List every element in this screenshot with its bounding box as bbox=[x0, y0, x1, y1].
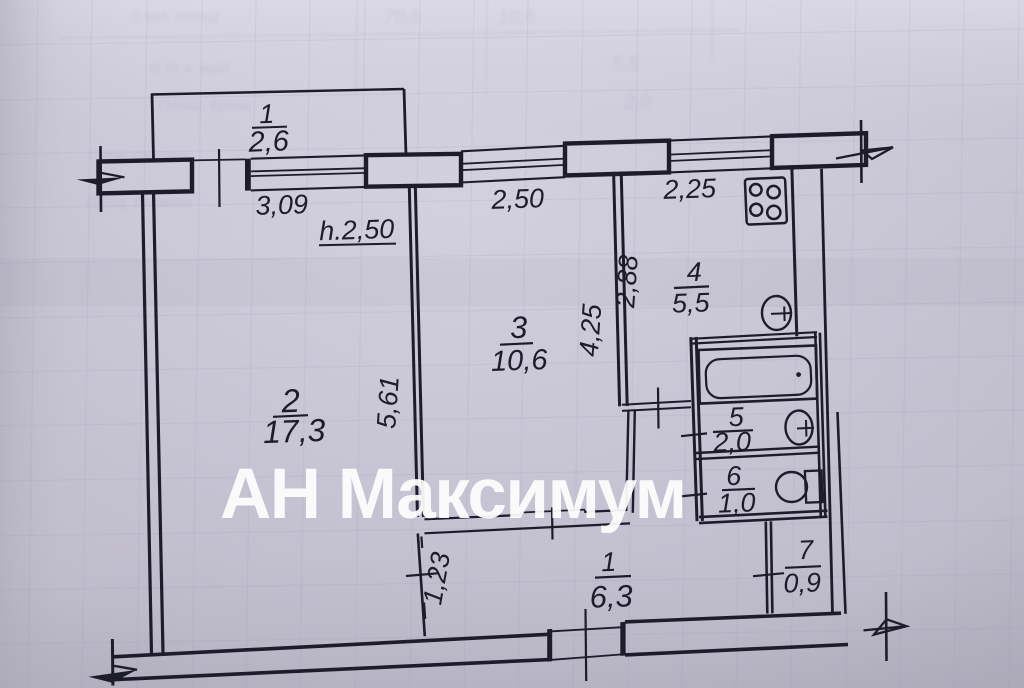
svg-text:5,5: 5,5 bbox=[671, 287, 711, 318]
svg-text:3,09: 3,09 bbox=[255, 189, 309, 221]
svg-text:h.2,50: h.2,50 bbox=[319, 214, 395, 247]
svg-text:8 мл. площ: 8 мл. площ bbox=[131, 7, 219, 26]
svg-text:10,6: 10,6 bbox=[498, 7, 535, 28]
svg-text:В т.ч. жил: В т.ч. жил bbox=[150, 60, 229, 77]
svg-text:10,6: 10,6 bbox=[490, 344, 548, 378]
svg-text:2,0: 2,0 bbox=[712, 426, 752, 457]
svg-text:2,50: 2,50 bbox=[490, 183, 545, 215]
svg-text:5,5: 5,5 bbox=[612, 54, 639, 75]
svg-text:2,25: 2,25 bbox=[662, 173, 718, 205]
svg-text:70,6: 70,6 bbox=[384, 7, 421, 28]
svg-text:1: 1 bbox=[259, 99, 275, 130]
svg-text:2,6: 2,6 bbox=[247, 125, 290, 158]
svg-text:6,3: 6,3 bbox=[589, 578, 633, 614]
svg-text:1: 1 bbox=[601, 547, 617, 578]
svg-text:7: 7 bbox=[798, 535, 815, 566]
svg-text:3: 3 bbox=[509, 310, 527, 346]
svg-text:17,3: 17,3 bbox=[262, 412, 326, 450]
svg-text:4: 4 bbox=[686, 257, 702, 288]
svg-text:0,9: 0,9 bbox=[783, 567, 822, 598]
svg-text:Площ. кухни: Площ. кухни bbox=[158, 97, 251, 114]
svg-text:2,88: 2,88 bbox=[610, 254, 644, 310]
svg-text:АН Максимум: АН Максимум bbox=[220, 455, 686, 534]
svg-text:5,61: 5,61 bbox=[371, 375, 405, 430]
svg-text:4,25: 4,25 bbox=[574, 302, 608, 357]
svg-text:2,0: 2,0 bbox=[623, 92, 651, 113]
svg-text:6: 6 bbox=[726, 461, 743, 492]
svg-text:1,0: 1,0 bbox=[717, 487, 756, 518]
